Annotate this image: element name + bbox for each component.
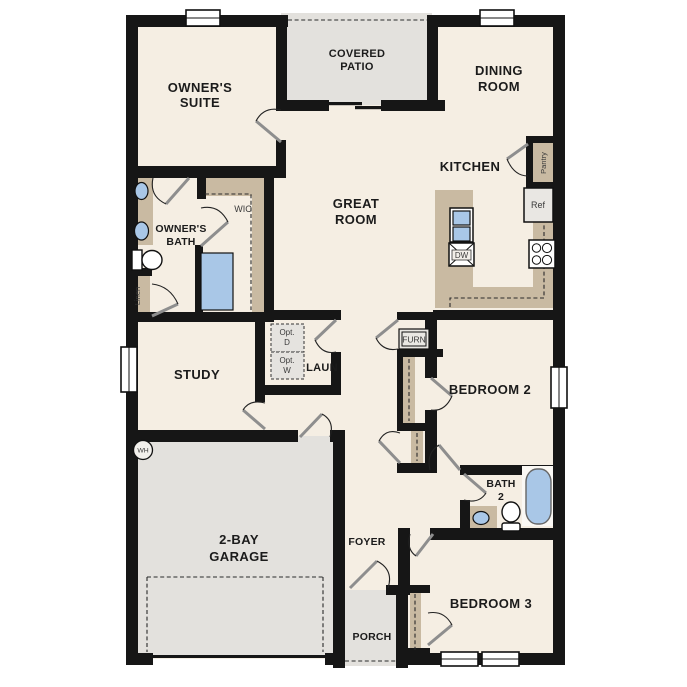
vanity-sink: [473, 512, 489, 525]
great-room-label-1: GREAT: [333, 196, 380, 211]
water-heater-label: WH: [137, 448, 148, 455]
wic-label: WIC: [234, 204, 252, 214]
refrigerator-label: Ref: [531, 200, 546, 210]
kitchen-sink-basin: [453, 227, 470, 241]
floor-plan-canvas: OWNER'S SUITE COVERED PATIO DINING ROOM …: [0, 0, 687, 687]
foyer-label: FOYER: [348, 536, 385, 548]
toilet-bath2: [502, 502, 520, 531]
owners-bath-label-1: OWNER'S: [155, 223, 206, 235]
garage-label-1: 2-BAY: [219, 532, 259, 547]
porch-label: PORCH: [353, 631, 392, 643]
covered-patio-label-1: COVERED: [329, 48, 386, 60]
floor-plan: OWNER'S SUITE COVERED PATIO DINING ROOM …: [0, 0, 687, 687]
pantry-label: Pantry: [539, 152, 548, 174]
great-room-label-2: ROOM: [335, 212, 377, 227]
furnace-label: FURN: [402, 335, 426, 345]
shower: [201, 253, 233, 310]
bath2-label-2: 2: [498, 491, 504, 503]
study-label: STUDY: [174, 367, 220, 382]
bedroom3-label: BEDROOM 3: [450, 596, 532, 611]
kitchen-label: KITCHEN: [440, 159, 501, 174]
owners-suite-label-2: SUITE: [180, 95, 220, 110]
bath2-label-1: BATH: [486, 478, 515, 490]
linen-label: Linen: [133, 287, 142, 305]
dishwasher-label: DW: [455, 251, 469, 260]
sliding-door-panel: [329, 102, 362, 105]
bedroom2-label: BEDROOM 2: [449, 382, 531, 397]
porch-floor: [339, 590, 402, 666]
owners-suite-label-1: OWNER'S: [168, 80, 232, 95]
toilet-owners-bath: [132, 250, 162, 270]
laundry-label: LAUN: [306, 362, 338, 374]
bathtub: [522, 466, 553, 526]
dining-room-label-2: ROOM: [478, 79, 520, 94]
opt-washer-label-1: Opt.: [279, 356, 294, 365]
covered-patio-label-2: PATIO: [340, 61, 374, 73]
kitchen-sink-basin: [453, 211, 470, 225]
cooktop: [529, 240, 555, 268]
dining-room-label-1: DINING: [475, 63, 523, 78]
vanity-sink: [135, 222, 149, 240]
owners-bath-label-2: BATH: [166, 236, 195, 248]
opt-dryer-label-1: Opt.: [279, 328, 294, 337]
vanity-sink: [135, 183, 148, 200]
garage-label-2: GARAGE: [209, 549, 268, 564]
sliding-door-panel: [355, 106, 382, 109]
opt-washer-label-2: W: [283, 366, 291, 375]
opt-dryer-label-2: D: [284, 338, 290, 347]
